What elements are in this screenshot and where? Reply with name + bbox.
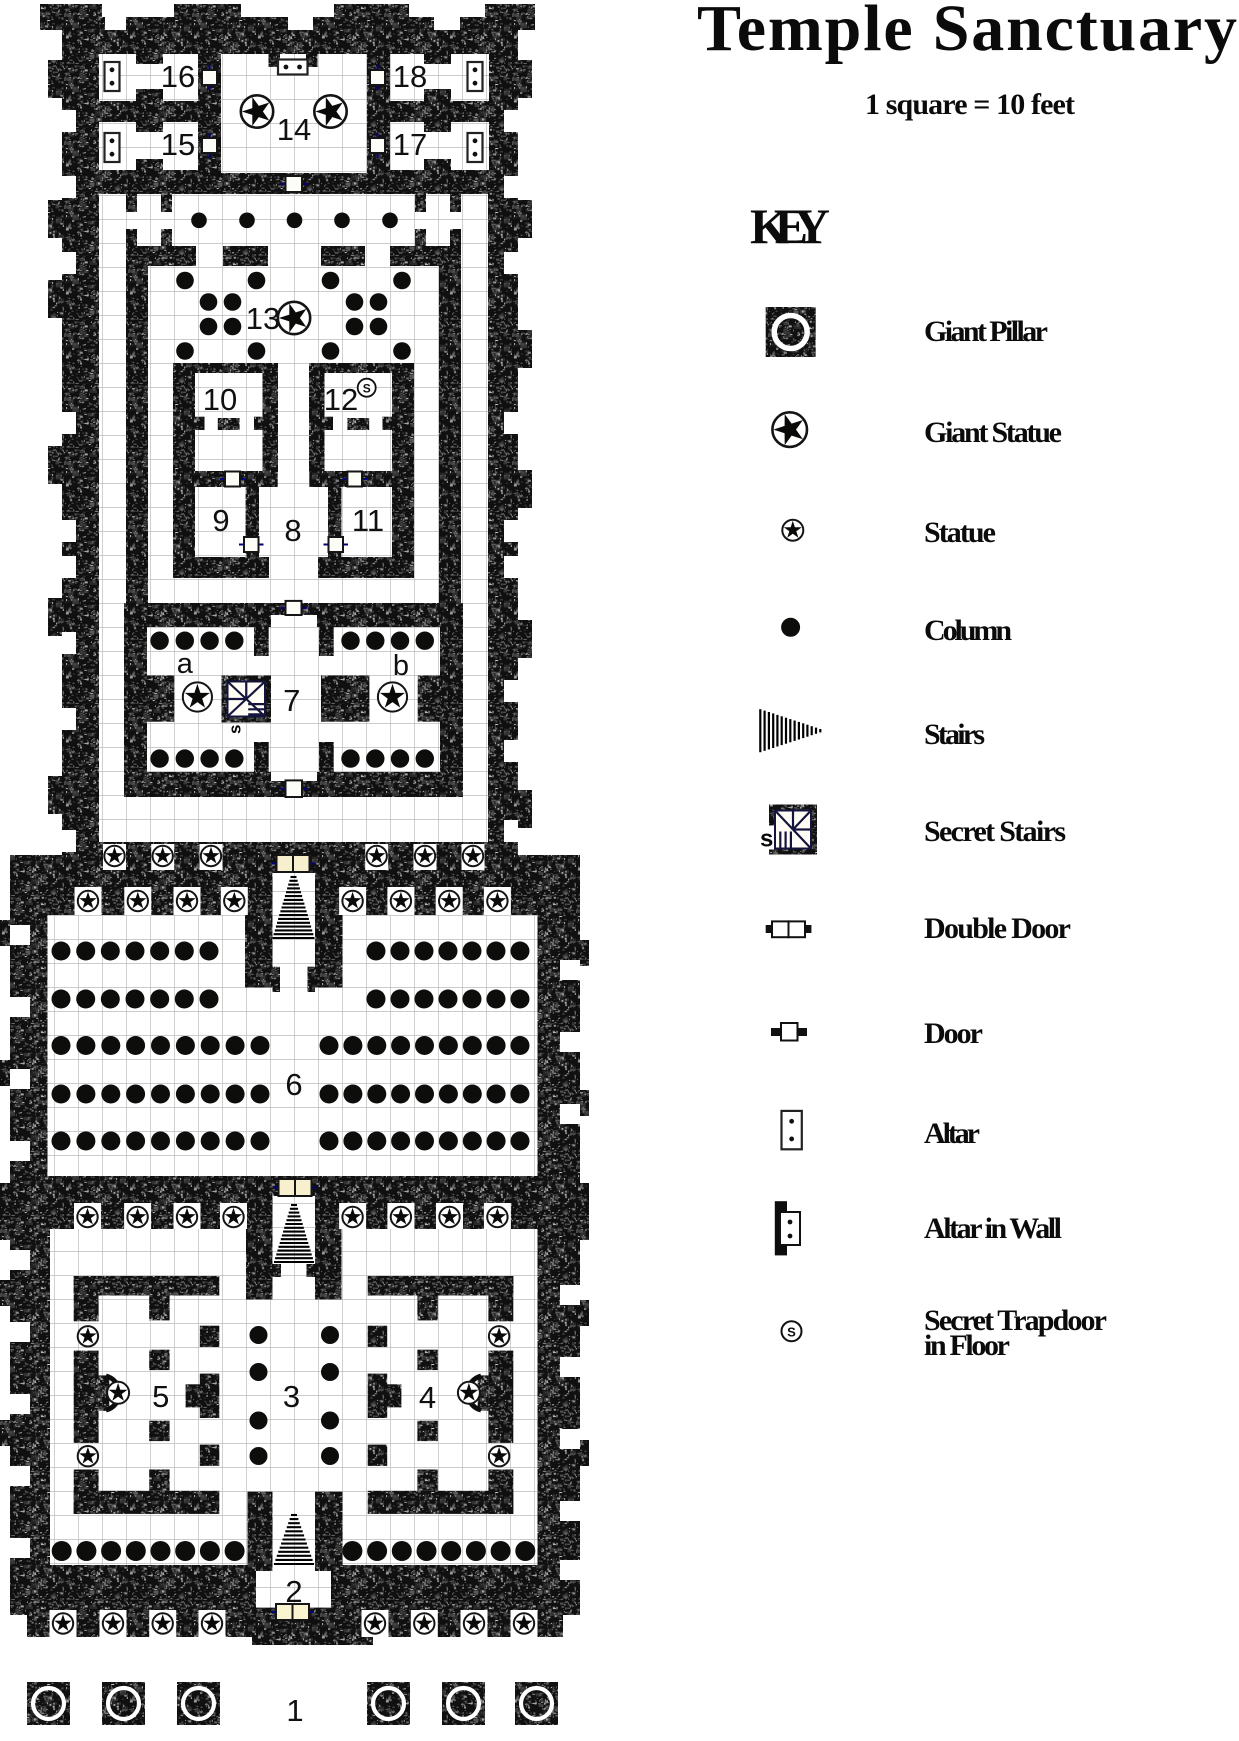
svg-text:13: 13 [246, 301, 280, 336]
svg-text:KEY: KEY [750, 198, 830, 254]
svg-text:5: 5 [152, 1379, 169, 1414]
svg-text:Giant Pillar: Giant Pillar [924, 315, 1048, 348]
svg-text:7: 7 [283, 683, 300, 718]
svg-text:1: 1 [286, 1693, 303, 1728]
svg-text:Altar in Wall: Altar in Wall [924, 1212, 1062, 1245]
svg-text:in Floor: in Floor [924, 1329, 1010, 1362]
svg-text:S: S [787, 1325, 796, 1340]
svg-text:Altar: Altar [924, 1117, 980, 1150]
svg-text:16: 16 [161, 59, 195, 94]
svg-text:b: b [393, 650, 409, 682]
svg-text:Statue: Statue [924, 516, 996, 549]
svg-text:s: s [760, 826, 773, 853]
svg-text:2: 2 [285, 1574, 302, 1609]
svg-text:9: 9 [212, 503, 229, 538]
svg-text:Double Door: Double Door [924, 912, 1071, 945]
svg-text:10: 10 [203, 382, 237, 417]
svg-text:Column: Column [924, 614, 1012, 647]
svg-text:11: 11 [352, 503, 384, 538]
svg-text:Stairs: Stairs [924, 718, 985, 751]
svg-text:Secret Stairs: Secret Stairs [924, 815, 1066, 848]
svg-text:4: 4 [419, 1380, 436, 1415]
svg-text:8: 8 [284, 513, 301, 548]
svg-text:15: 15 [161, 127, 195, 162]
svg-text:12: 12 [324, 382, 358, 417]
svg-text:Temple Sanctuary: Temple Sanctuary [697, 0, 1237, 65]
svg-text:3: 3 [283, 1379, 300, 1414]
svg-text:6: 6 [285, 1067, 302, 1102]
svg-text:1 square = 10 feet: 1 square = 10 feet [865, 88, 1075, 121]
svg-text:17: 17 [393, 127, 427, 162]
svg-text:Door: Door [924, 1017, 983, 1050]
svg-text:s: s [225, 725, 244, 734]
svg-text:S: S [363, 382, 371, 396]
svg-text:18: 18 [393, 59, 427, 94]
svg-text:14: 14 [277, 112, 311, 147]
svg-text:a: a [177, 648, 194, 680]
svg-text:Giant Statue: Giant Statue [924, 416, 1062, 449]
